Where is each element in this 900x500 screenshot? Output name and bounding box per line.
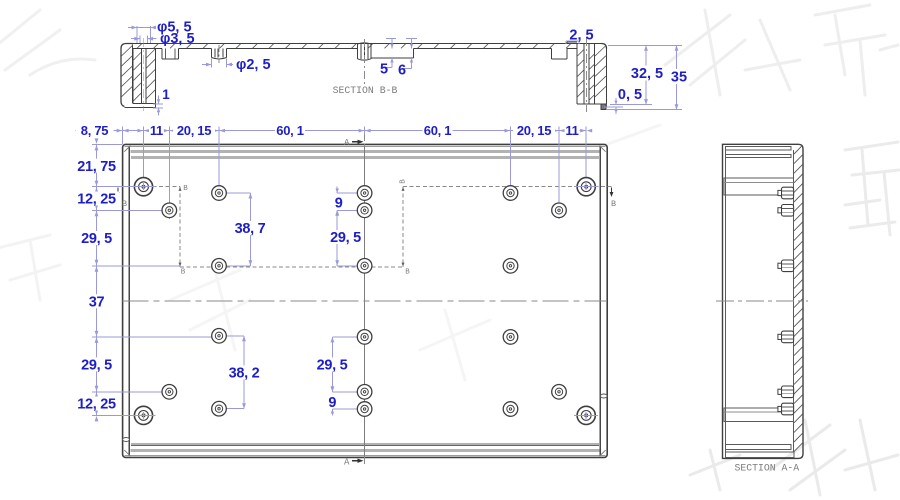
- svg-text:9: 9: [328, 395, 336, 411]
- svg-text:1: 1: [162, 87, 170, 102]
- svg-text:60, 1: 60, 1: [276, 123, 303, 138]
- svg-text:B: B: [122, 199, 127, 209]
- svg-text:29, 5: 29, 5: [330, 230, 361, 246]
- svg-text:A: A: [344, 458, 350, 468]
- svg-text:29, 5: 29, 5: [81, 358, 112, 374]
- svg-text:20, 15: 20, 15: [517, 123, 551, 138]
- svg-text:SECTION B-B: SECTION B-B: [333, 85, 398, 96]
- svg-text:B: B: [400, 179, 408, 184]
- svg-text:8, 75: 8, 75: [81, 123, 108, 138]
- svg-text:6: 6: [398, 63, 406, 79]
- svg-text:32, 5: 32, 5: [631, 66, 663, 82]
- svg-text:38, 7: 38, 7: [235, 221, 266, 237]
- svg-text:φ3, 5: φ3, 5: [160, 31, 195, 47]
- svg-text:21, 75: 21, 75: [77, 159, 116, 175]
- svg-text:12, 25: 12, 25: [77, 397, 116, 413]
- svg-text:B: B: [181, 269, 186, 277]
- svg-text:29, 5: 29, 5: [317, 358, 348, 374]
- svg-text:A: A: [344, 138, 350, 148]
- svg-text:11: 11: [150, 123, 163, 138]
- svg-text:12, 25: 12, 25: [77, 192, 116, 208]
- svg-text:35: 35: [671, 70, 687, 86]
- svg-text:B: B: [611, 199, 616, 209]
- svg-text:37: 37: [89, 294, 105, 310]
- svg-text:B: B: [405, 269, 410, 277]
- svg-text:11: 11: [565, 123, 578, 138]
- svg-text:SECTION A-A: SECTION A-A: [734, 463, 799, 474]
- svg-text:60, 1: 60, 1: [424, 123, 451, 138]
- svg-text:29, 5: 29, 5: [81, 231, 112, 247]
- svg-text:B: B: [183, 185, 188, 193]
- svg-text:9: 9: [335, 195, 343, 211]
- svg-text:0, 5: 0, 5: [618, 87, 642, 103]
- svg-text:20, 15: 20, 15: [177, 123, 211, 138]
- svg-text:φ2, 5: φ2, 5: [236, 57, 271, 73]
- svg-text:38, 2: 38, 2: [229, 366, 260, 382]
- svg-text:5: 5: [380, 62, 388, 78]
- svg-text:2, 5: 2, 5: [569, 28, 593, 44]
